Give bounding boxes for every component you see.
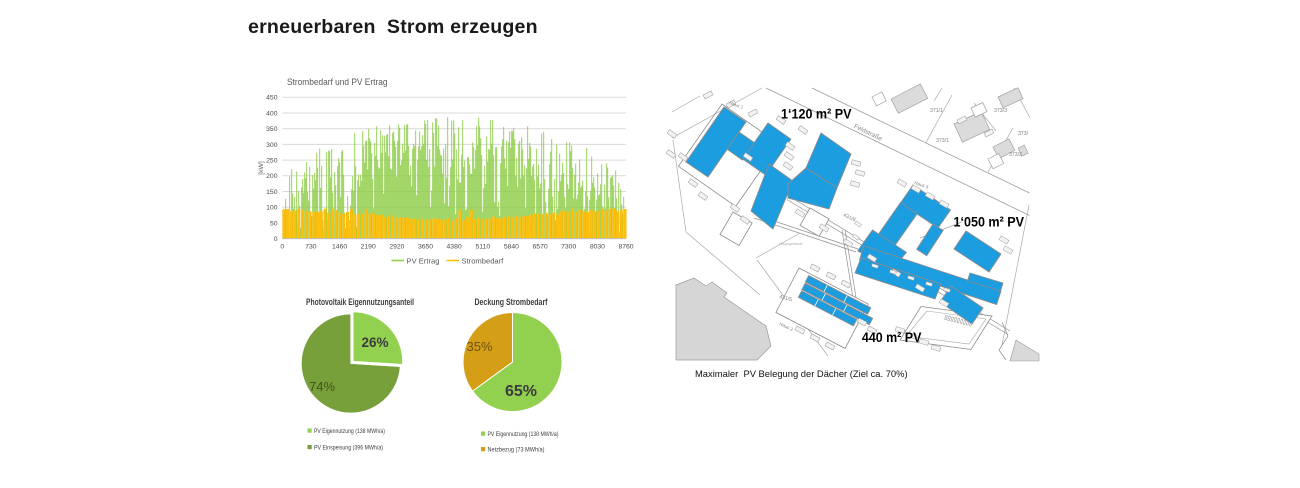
svg-text:371/1: 371/1 bbox=[930, 108, 943, 114]
svg-text:373/3: 373/3 bbox=[994, 108, 1007, 114]
svg-text:Strombedarf: Strombedarf bbox=[462, 256, 505, 265]
svg-text:150: 150 bbox=[266, 189, 278, 196]
svg-text:8760: 8760 bbox=[618, 244, 633, 251]
svg-text:65%: 65% bbox=[505, 383, 537, 400]
svg-text:26%: 26% bbox=[361, 335, 388, 350]
svg-text:PV Eigennutzung (138 MWh/a): PV Eigennutzung (138 MWh/a) bbox=[488, 431, 559, 438]
svg-text:2920: 2920 bbox=[389, 244, 404, 251]
svg-text:Haus 1: Haus 1 bbox=[729, 100, 745, 110]
svg-text:Deckung Strombedarf: Deckung Strombedarf bbox=[475, 297, 549, 308]
svg-text:50: 50 bbox=[270, 220, 278, 227]
svg-text:1‘050 m² PV: 1‘050 m² PV bbox=[954, 214, 1025, 230]
svg-text:2190: 2190 bbox=[361, 244, 376, 251]
svg-text:PV Einspeisung (396 MWh/a): PV Einspeisung (396 MWh/a) bbox=[314, 445, 383, 452]
svg-text:Hauptgebäude: Hauptgebäude bbox=[779, 242, 803, 246]
svg-text:5110: 5110 bbox=[475, 244, 490, 251]
svg-text:373/1: 373/1 bbox=[936, 138, 949, 144]
svg-text:373/2: 373/2 bbox=[1009, 152, 1022, 158]
svg-text:3650: 3650 bbox=[418, 244, 433, 251]
svg-text:6570: 6570 bbox=[533, 244, 548, 251]
svg-text:PV Eigennutzung (138 MWh/a): PV Eigennutzung (138 MWh/a) bbox=[314, 428, 385, 435]
svg-text:Maximaler PV Belegung der Däc: Maximaler PV Belegung der Dächer (Ziel c… bbox=[695, 368, 908, 379]
svg-text:431/8: 431/8 bbox=[842, 212, 856, 223]
svg-text:0: 0 bbox=[274, 236, 278, 243]
svg-text:440 m² PV: 440 m² PV bbox=[862, 330, 922, 346]
svg-text:400: 400 bbox=[266, 110, 278, 117]
svg-text:Haus 2: Haus 2 bbox=[779, 321, 795, 332]
svg-text:PV Ertrag: PV Ertrag bbox=[407, 256, 440, 265]
svg-text:200: 200 bbox=[266, 173, 278, 180]
svg-text:7300: 7300 bbox=[561, 244, 576, 251]
svg-text:8030: 8030 bbox=[590, 244, 605, 251]
svg-text:0: 0 bbox=[280, 244, 284, 251]
svg-text:Photovoltaik Eigennutzungsante: Photovoltaik Eigennutzungsanteil bbox=[306, 297, 414, 308]
svg-text:4380: 4380 bbox=[447, 244, 462, 251]
svg-text:300: 300 bbox=[266, 142, 278, 149]
svg-text:730: 730 bbox=[305, 244, 317, 251]
svg-text:Netzbezug (73 MWh/a): Netzbezug (73 MWh/a) bbox=[488, 447, 545, 454]
svg-text:373/: 373/ bbox=[1018, 131, 1029, 137]
svg-text:1460: 1460 bbox=[332, 244, 347, 251]
svg-text:350: 350 bbox=[266, 126, 278, 133]
svg-text:74%: 74% bbox=[309, 379, 335, 394]
svg-text:1‘120 m² PV: 1‘120 m² PV bbox=[781, 107, 852, 123]
svg-text:450: 450 bbox=[266, 95, 278, 102]
svg-text:100: 100 bbox=[266, 205, 278, 212]
svg-text:5840: 5840 bbox=[504, 244, 519, 251]
svg-text:Strombedarf und PV Ertrag: Strombedarf und PV Ertrag bbox=[287, 77, 388, 88]
svg-text:Feldstraße: Feldstraße bbox=[853, 123, 884, 143]
svg-text:35%: 35% bbox=[466, 339, 492, 354]
svg-text:250: 250 bbox=[266, 158, 278, 165]
svg-text:[kW]: [kW] bbox=[258, 161, 265, 175]
